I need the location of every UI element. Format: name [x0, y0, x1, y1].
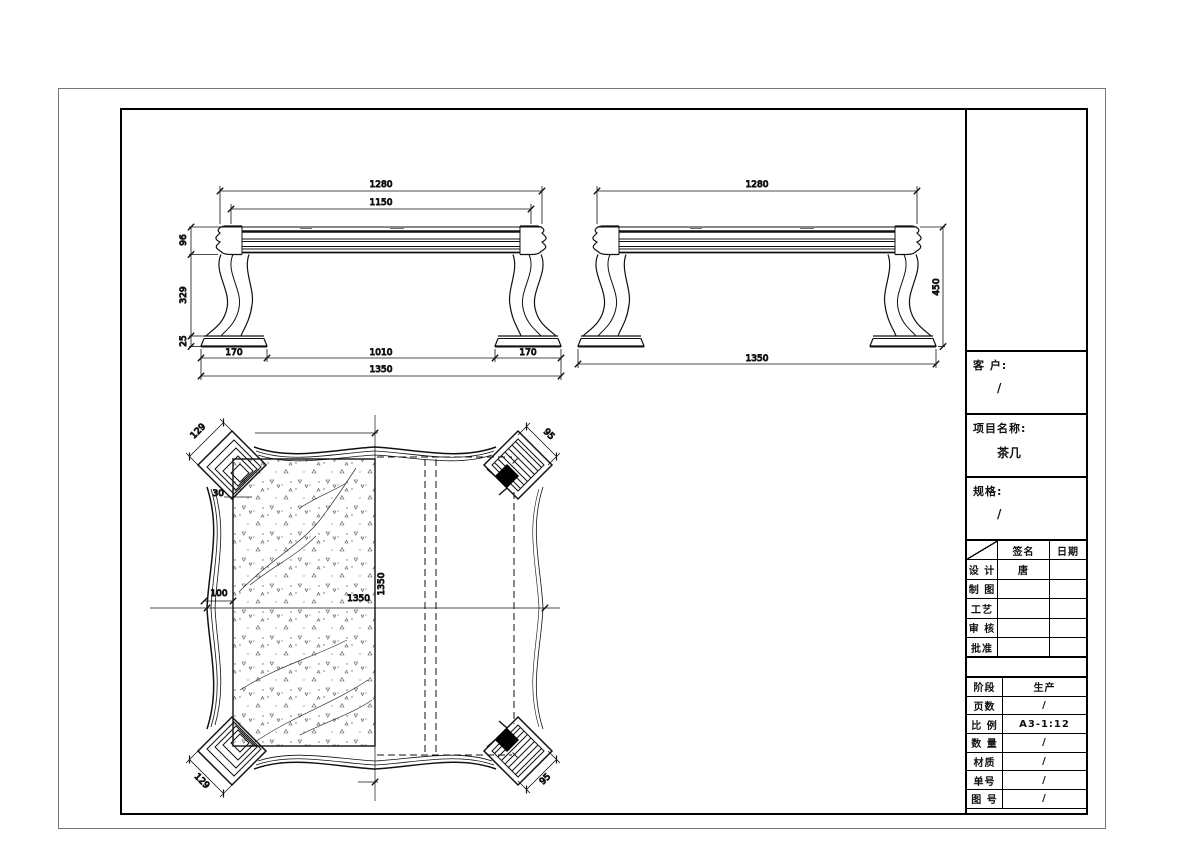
drawing-sheet: 1280 1150 96 329 25 170 1010 170 1350 — [0, 0, 1191, 842]
stage-label: 阶段 — [967, 678, 1003, 697]
row-approve-sign — [998, 638, 1050, 657]
row-review-sign — [998, 619, 1050, 638]
side-dim-1280: 1280 — [746, 180, 769, 190]
row-draft-sign — [998, 580, 1050, 599]
row-review-label: 审 核 — [967, 619, 998, 638]
front-elevation: 1280 1150 96 329 25 170 1010 170 1350 — [179, 180, 564, 380]
row-draft-label: 制 图 — [967, 580, 998, 599]
order-no-value: / — [1003, 771, 1086, 790]
plan-dim-95-br: 95 — [538, 772, 553, 787]
stage-value: 生产 — [1003, 678, 1086, 697]
project-section: 项目名称: 茶几 — [967, 415, 1086, 478]
signature-table: 签名 日期 设 计 唐 制 图 工艺 审 核 批准 — [967, 541, 1086, 658]
spec-section: 规格: / — [967, 478, 1086, 541]
row-approve-date — [1050, 638, 1086, 657]
date-column-header: 日期 — [1050, 541, 1086, 560]
scale-value: A3-1:12 — [1003, 715, 1086, 734]
plan-dim-129-bl: 129 — [192, 772, 211, 791]
quantity-value: / — [1003, 734, 1086, 753]
front-dim-1150: 1150 — [370, 198, 393, 208]
plan-dim-1350-v: 1350 — [377, 572, 387, 595]
row-approve-label: 批准 — [967, 638, 998, 657]
plan-dim-129-tl: 129 — [189, 422, 208, 441]
title-block-spacer-cell — [967, 658, 1086, 678]
front-dim-1280: 1280 — [370, 180, 393, 190]
side-elevation: 1280 1350 450 — [575, 180, 946, 368]
row-craft-date — [1050, 599, 1086, 618]
project-label: 项目名称: — [967, 415, 1086, 436]
drawing-no-label: 图 号 — [967, 790, 1003, 809]
title-block-empty-cell — [967, 110, 1086, 352]
signature-column-header: 签名 — [998, 541, 1050, 560]
front-dim-170-right: 170 — [519, 348, 536, 358]
row-craft-sign — [998, 599, 1050, 618]
plan-view: 129 95 129 95 30 100 1350 1350 — [150, 415, 569, 801]
plan-dim-30: 30 — [213, 489, 225, 499]
plan-dim-1350-h: 1350 — [347, 594, 370, 604]
info-table: 阶段 生产 页数 / 比 例 A3-1:12 数 量 / 材质 / 单号 / 图… — [967, 678, 1086, 813]
row-draft-date — [1050, 580, 1086, 599]
front-dim-96: 96 — [179, 234, 189, 246]
row-review-date — [1050, 619, 1086, 638]
scale-label: 比 例 — [967, 715, 1003, 734]
spec-value: / — [967, 499, 1086, 521]
customer-value: / — [967, 373, 1086, 395]
plan-dim-95-tr: 95 — [541, 427, 556, 442]
row-design-date — [1050, 560, 1086, 579]
drawing-no-value: / — [1003, 790, 1086, 809]
project-value: 茶几 — [967, 436, 1086, 461]
customer-section: 客 户: / — [967, 352, 1086, 415]
signature-table-diagonal-cell — [967, 541, 998, 560]
spec-label: 规格: — [967, 478, 1086, 499]
front-dim-170-left: 170 — [225, 348, 242, 358]
plan-dim-100: 100 — [210, 589, 227, 599]
front-dim-1010: 1010 — [370, 348, 393, 358]
quantity-label: 数 量 — [967, 734, 1003, 753]
pages-value: / — [1003, 697, 1086, 716]
customer-label: 客 户: — [967, 352, 1086, 373]
front-dim-1350: 1350 — [370, 365, 393, 375]
front-dim-329: 329 — [179, 286, 189, 303]
row-design-sign: 唐 — [998, 560, 1050, 579]
material-label: 材质 — [967, 753, 1003, 772]
row-craft-label: 工艺 — [967, 599, 998, 618]
title-block: 客 户: / 项目名称: 茶几 规格: / 签名 日期 设 计 唐 制 图 工艺… — [965, 110, 1086, 813]
material-value: / — [1003, 753, 1086, 772]
side-dim-1350: 1350 — [746, 354, 769, 364]
order-no-label: 单号 — [967, 771, 1003, 790]
front-dim-25: 25 — [179, 335, 189, 346]
row-design-label: 设 计 — [967, 560, 998, 579]
pages-label: 页数 — [967, 697, 1003, 716]
side-dim-450: 450 — [932, 278, 942, 295]
